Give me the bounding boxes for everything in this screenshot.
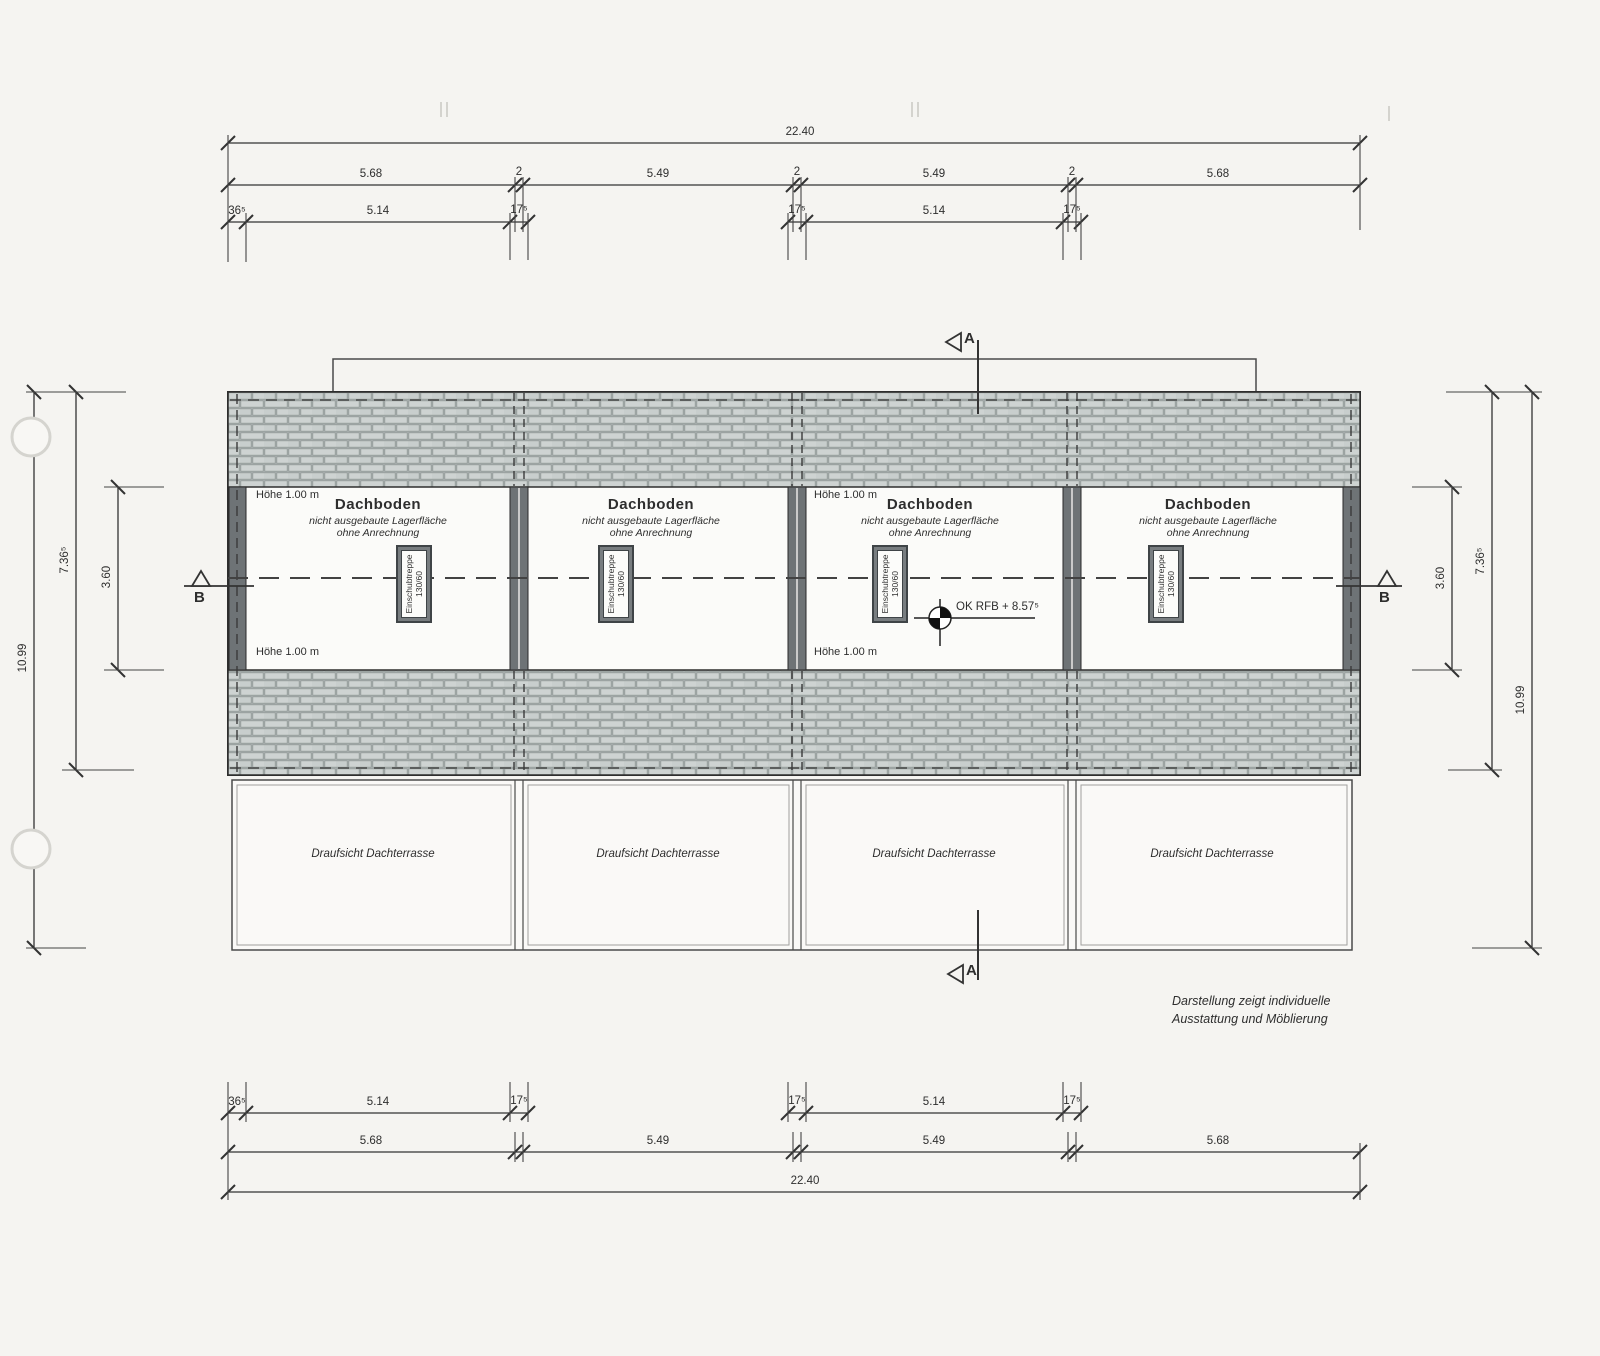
terrace-area — [232, 780, 1352, 950]
footnote-line2: Ausstattung und Möblierung — [1172, 1012, 1328, 1026]
terrace-label: Draufsicht Dachterrasse — [311, 848, 434, 860]
room-title: Dachboden — [608, 496, 694, 513]
stair-label-line2: 130/60 — [414, 547, 424, 621]
dim-label: 36⁵ — [228, 205, 246, 217]
stair-label-line2: 130/60 — [616, 547, 626, 621]
stair-label-line1: Einschubtreppe — [880, 547, 890, 621]
pull-down-stair: Einschubtreppe 130/60 — [396, 545, 432, 623]
dim-label: 5.68 — [360, 1135, 382, 1147]
dim-label-building-left: 7.36⁵ — [59, 546, 71, 573]
stair-label-line2: 130/60 — [1166, 547, 1176, 621]
room-title: Dachboden — [335, 496, 421, 513]
section-arrow-icon — [946, 333, 961, 351]
stair-label-line1: Einschubtreppe — [606, 547, 616, 621]
pull-down-stair: Einschubtreppe 130/60 — [598, 545, 634, 623]
pull-down-stair-inner: Einschubtreppe 130/60 — [877, 550, 903, 618]
dim-label: 17⁵ — [1063, 204, 1081, 216]
section-arrow-icon — [192, 571, 210, 586]
footnote-line1: Darstellung zeigt individuelle — [1172, 994, 1330, 1008]
dim-chain-right — [1452, 392, 1532, 948]
dim-extensions-top — [228, 135, 1360, 262]
dim-label-overall-left: 10.99 — [17, 644, 29, 673]
terrace-label: Draufsicht Dachterrasse — [1150, 848, 1273, 860]
dim-label-attic-left: 3.60 — [101, 566, 113, 588]
terrace-label: Draufsicht Dachterrasse — [596, 848, 719, 860]
room-subtitle: nicht ausgebaute Lagerfläche — [582, 515, 720, 527]
stair-label: Einschubtreppe 130/60 — [880, 547, 900, 621]
room-subtitle: ohne Anrechnung — [610, 527, 693, 539]
height-note: Höhe 1.00 m — [814, 646, 877, 658]
terrace-label: Draufsicht Dachterrasse — [872, 848, 995, 860]
dim-label: 17⁵ — [1063, 1095, 1081, 1107]
dim-label: 2 — [1069, 166, 1075, 178]
stair-label: Einschubtreppe 130/60 — [1156, 547, 1176, 621]
dim-label: 5.14 — [367, 1096, 389, 1108]
pull-down-stair: Einschubtreppe 130/60 — [872, 545, 908, 623]
dim-label: 5.68 — [360, 168, 382, 180]
level-label: OK RFB + 8.57⁵ — [956, 601, 1039, 613]
section-a-label-bottom: A — [966, 962, 977, 979]
room-title: Dachboden — [887, 496, 973, 513]
dim-label: 2 — [794, 166, 800, 178]
section-b-label-right: B — [1379, 589, 1390, 606]
roof-hatch-bottom — [228, 670, 1360, 775]
dim-label: 5.14 — [923, 1096, 945, 1108]
stair-label-line1: Einschubtreppe — [404, 547, 414, 621]
pull-down-stair-inner: Einschubtreppe 130/60 — [603, 550, 629, 618]
dim-extensions-left — [26, 392, 164, 948]
roof-hatch-top — [228, 392, 1360, 487]
dim-label-attic-right: 3.60 — [1435, 567, 1447, 589]
dim-label: 5.49 — [923, 168, 945, 180]
room-subtitle: ohne Anrechnung — [337, 527, 420, 539]
dim-label: 5.49 — [647, 1135, 669, 1147]
room-subtitle: nicht ausgebaute Lagerfläche — [861, 515, 999, 527]
dim-label: 2 — [516, 166, 522, 178]
pull-down-stair-inner: Einschubtreppe 130/60 — [1153, 550, 1179, 618]
pull-down-stair-inner: Einschubtreppe 130/60 — [401, 550, 427, 618]
dim-label-total-top: 22.40 — [786, 126, 815, 138]
height-note: Höhe 1.00 m — [256, 489, 319, 501]
dim-label: 17⁵ — [510, 1095, 528, 1107]
dim-label-total-bottom: 22.40 — [791, 1175, 820, 1187]
room-subtitle: nicht ausgebaute Lagerfläche — [309, 515, 447, 527]
section-a-label-top: A — [964, 330, 975, 347]
dim-label: 5.49 — [923, 1135, 945, 1147]
section-arrow-icon — [948, 965, 963, 983]
height-note: Höhe 1.00 m — [814, 489, 877, 501]
stair-label: Einschubtreppe 130/60 — [606, 547, 626, 621]
scan-marks — [441, 102, 1389, 121]
section-arrow-icon — [1378, 571, 1396, 586]
terrace-outline — [232, 780, 1352, 950]
room-subtitle: nicht ausgebaute Lagerfläche — [1139, 515, 1277, 527]
dim-label: 5.68 — [1207, 1135, 1229, 1147]
dim-label: 5.49 — [647, 168, 669, 180]
dim-label: 5.68 — [1207, 168, 1229, 180]
dim-label: 36⁵ — [228, 1096, 246, 1108]
dim-label: 5.14 — [367, 205, 389, 217]
room-subtitle: ohne Anrechnung — [889, 527, 972, 539]
dim-label: 17⁵ — [788, 1095, 806, 1107]
dim-extensions-right — [1412, 392, 1542, 948]
dim-label-overall-right: 10.99 — [1515, 686, 1527, 715]
room-subtitle: ohne Anrechnung — [1167, 527, 1250, 539]
pull-down-stair: Einschubtreppe 130/60 — [1148, 545, 1184, 623]
dim-label-building-right: 7.36⁵ — [1475, 547, 1487, 574]
room-title: Dachboden — [1165, 496, 1251, 513]
section-b-label-left: B — [194, 589, 205, 606]
stair-label-line1: Einschubtreppe — [1156, 547, 1166, 621]
floor-plan-page: 22.40 5.68 2 5.49 2 5.49 2 5.68 36⁵ 5.14… — [0, 0, 1600, 1356]
height-note: Höhe 1.00 m — [256, 646, 319, 658]
dim-label: 17⁵ — [788, 204, 806, 216]
dim-label: 5.14 — [923, 205, 945, 217]
stair-label: Einschubtreppe 130/60 — [404, 547, 424, 621]
stair-label-line2: 130/60 — [890, 547, 900, 621]
lower-floor-outline — [333, 359, 1256, 392]
dim-label: 17⁵ — [510, 204, 528, 216]
